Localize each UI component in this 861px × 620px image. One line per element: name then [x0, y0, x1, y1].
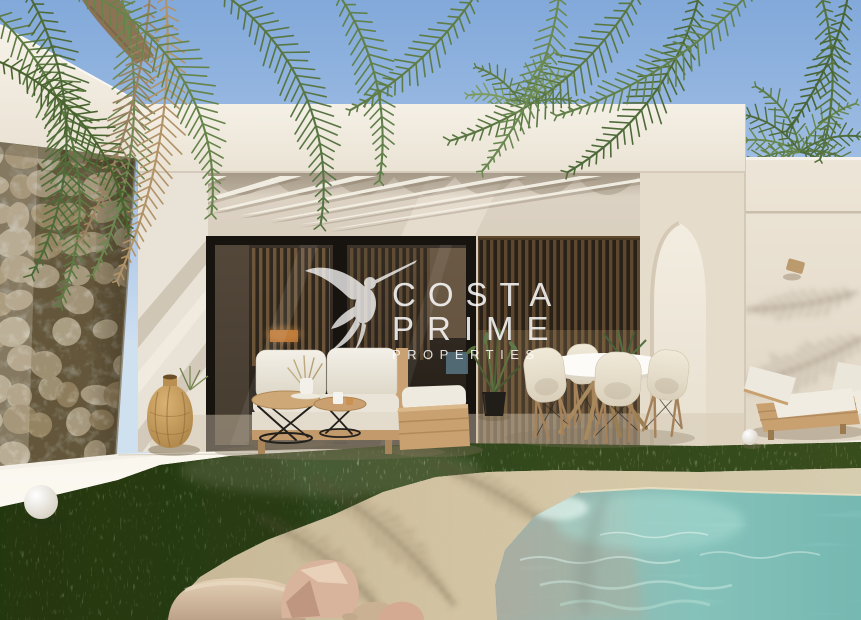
- roof-fascia: [138, 104, 745, 173]
- pool-reflection: [446, 352, 468, 374]
- chaise-daybed: [398, 385, 470, 450]
- villa-render: [0, 0, 861, 620]
- villa-photo: COSTA PRIME PROPERTIES: [0, 0, 861, 620]
